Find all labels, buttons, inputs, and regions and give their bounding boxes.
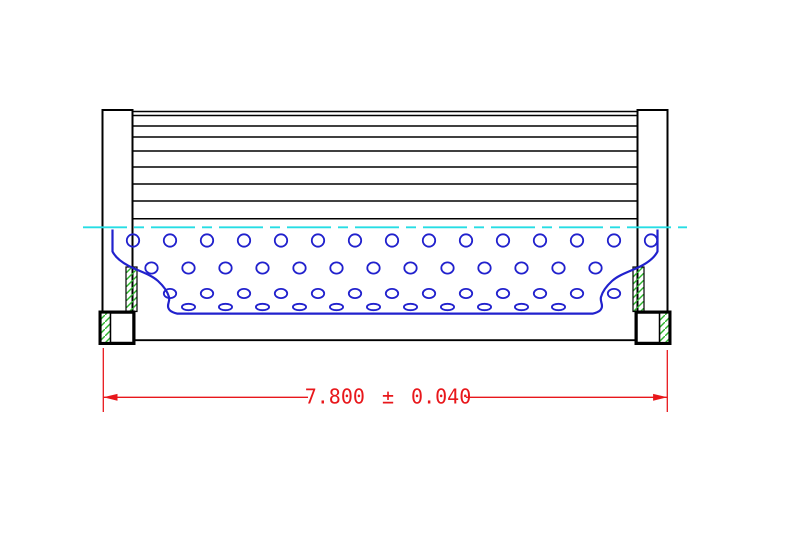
left-seal-hatch — [126, 267, 137, 312]
perforation-hole — [256, 262, 268, 273]
perforation-hole — [182, 304, 195, 310]
perforation-hole — [219, 262, 231, 273]
perforation-hole — [515, 304, 528, 310]
perforation-hole — [349, 289, 361, 298]
perforation-hole — [552, 262, 564, 273]
perforation-hole — [256, 304, 269, 310]
perforation-hole — [552, 304, 565, 310]
perforation-hole — [460, 289, 472, 298]
perforation-hole — [478, 304, 491, 310]
perforation-hole — [423, 234, 435, 246]
dimension-text: 7.800 ± 0.040 — [305, 385, 472, 409]
perforation-hole — [349, 234, 361, 246]
perforation-holes — [127, 234, 657, 310]
perforation-hole — [275, 234, 287, 246]
pleated-media — [133, 112, 638, 219]
right-flange-hatch — [660, 313, 670, 343]
perforation-hole — [367, 262, 379, 273]
drawing-canvas: 7.800 ± 0.040 — [0, 0, 789, 546]
perforation-hole — [404, 304, 417, 310]
perforation-hole — [293, 304, 306, 310]
perforation-hole — [219, 304, 232, 310]
perforation-hole — [571, 289, 583, 298]
perforation-hole — [534, 289, 546, 298]
perforation-hole — [238, 234, 250, 246]
perforation-hole — [386, 234, 398, 246]
perforation-hole — [534, 234, 546, 246]
left-flange-hatch — [101, 313, 111, 343]
perforation-hole — [312, 289, 324, 298]
perforation-hole — [423, 289, 435, 298]
perforation-hole — [571, 234, 583, 246]
perforation-hole — [497, 234, 509, 246]
left-flange — [100, 312, 135, 345]
perforation-hole — [201, 234, 213, 246]
perforation-hole — [238, 289, 250, 298]
perforation-hole — [330, 262, 342, 273]
perforation-hole — [441, 304, 454, 310]
perforation-hole — [275, 289, 287, 298]
right-arrowhead-icon — [653, 394, 667, 401]
dimension: 7.800 ± 0.040 — [103, 348, 667, 412]
right-flange — [636, 312, 671, 345]
perforation-hole — [478, 262, 490, 273]
perforation-hole — [293, 262, 305, 273]
perforation-hole — [497, 289, 509, 298]
right-flange-inner — [637, 313, 660, 343]
perforation-hole — [608, 289, 620, 298]
left-flange-inner — [111, 313, 134, 343]
perforation-hole — [386, 289, 398, 298]
perforation-hole — [515, 262, 527, 273]
right-seal-hatch — [633, 267, 644, 312]
perforation-hole — [182, 262, 194, 273]
left-arrowhead-icon — [103, 394, 117, 401]
perforation-hole — [330, 304, 343, 310]
perforation-hole — [608, 234, 620, 246]
perforation-hole — [201, 289, 213, 298]
perforation-hole — [164, 234, 176, 246]
perforation-hole — [460, 234, 472, 246]
perforation-hole — [589, 262, 601, 273]
perforation-hole — [367, 304, 380, 310]
perforation-hole — [312, 234, 324, 246]
technical-drawing: 7.800 ± 0.040 — [0, 0, 789, 546]
perforation-hole — [145, 262, 157, 273]
perforation-hole — [404, 262, 416, 273]
perforation-hole — [441, 262, 453, 273]
